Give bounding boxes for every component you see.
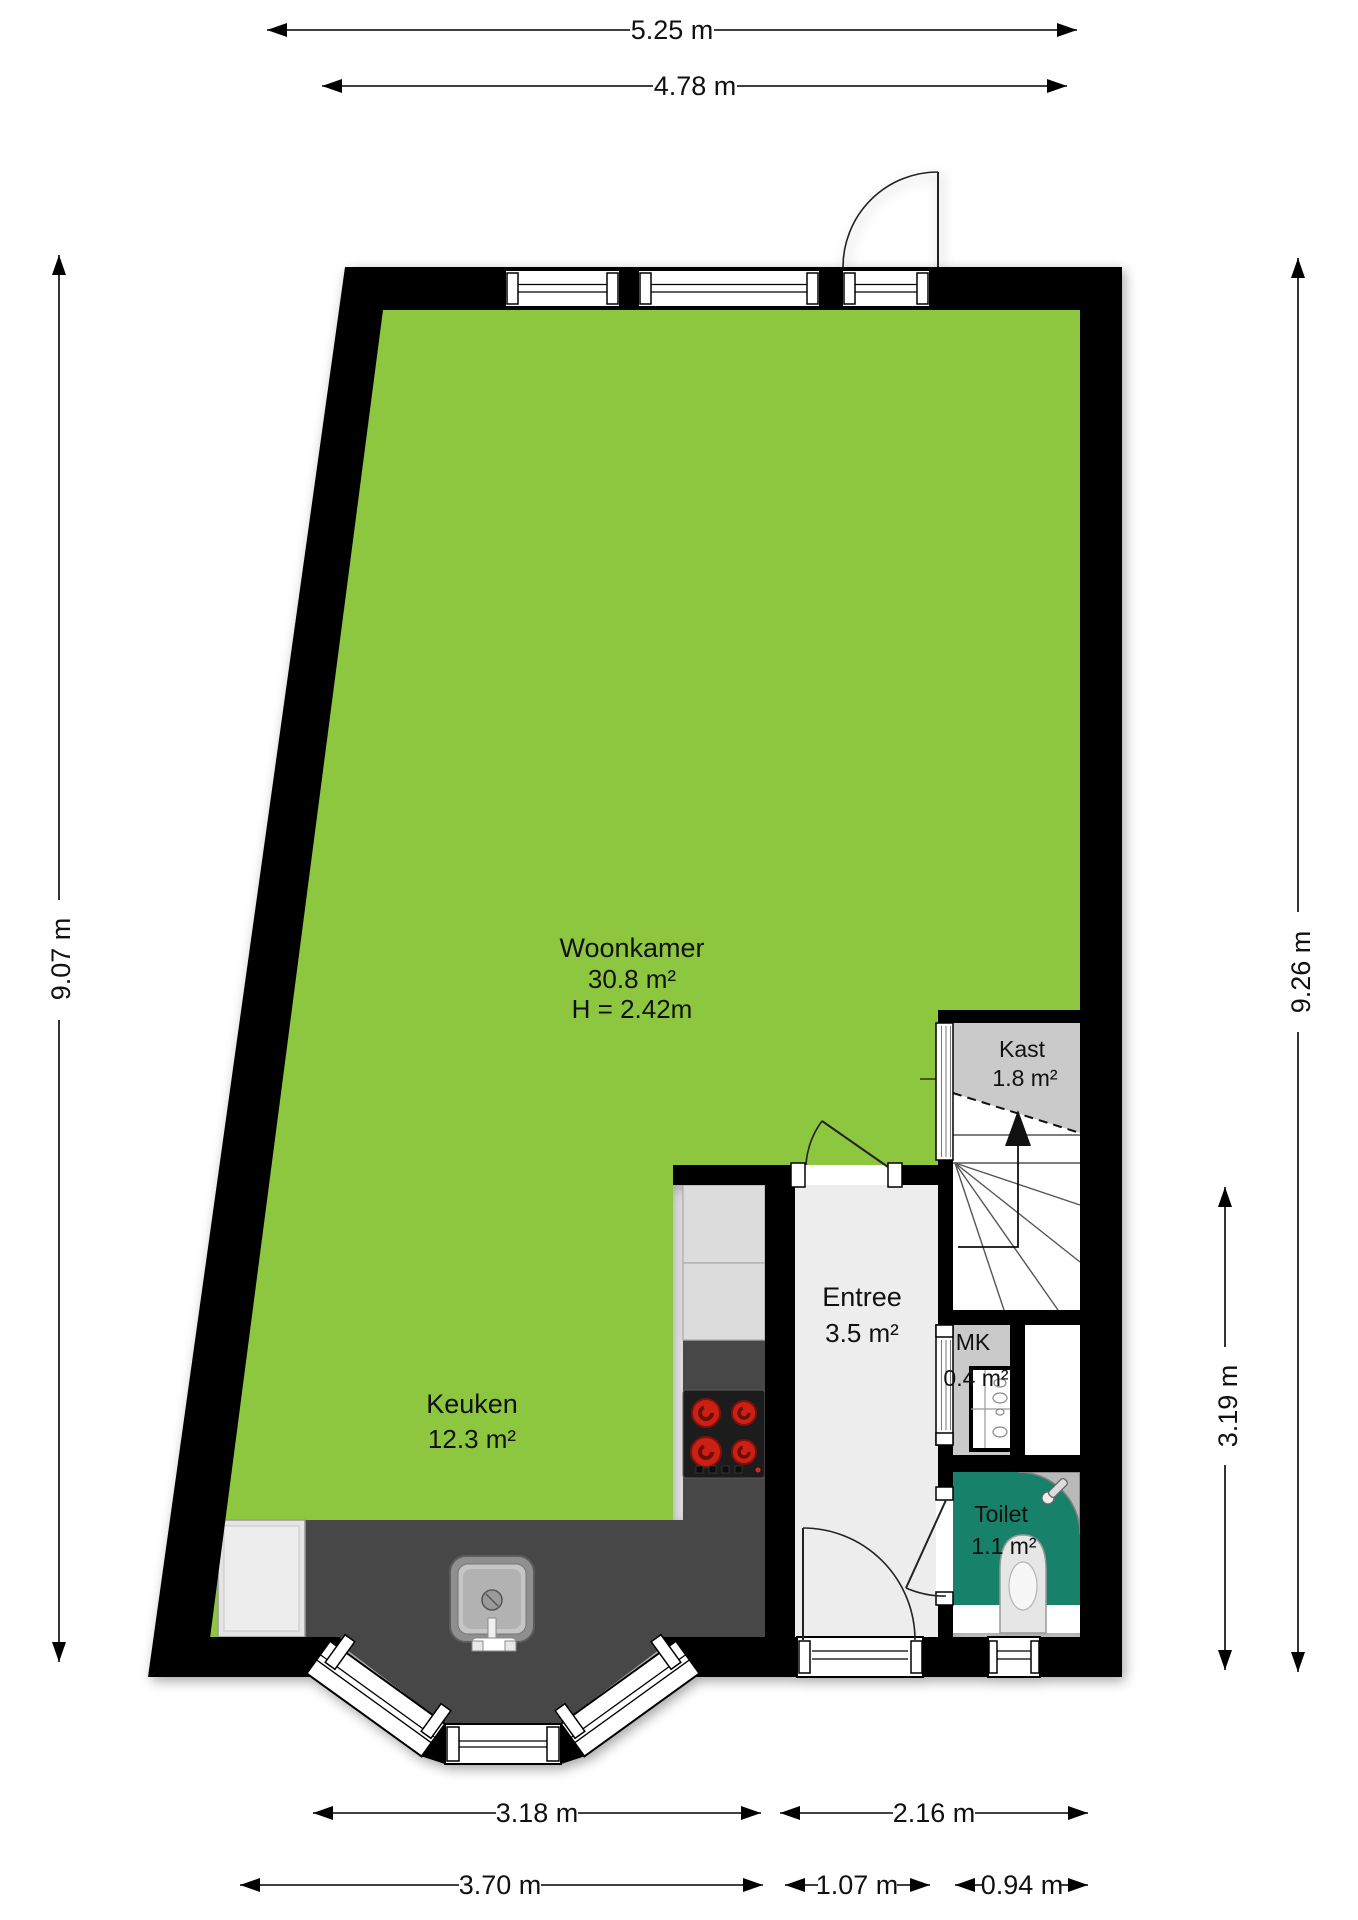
wall-mk-toilet	[938, 1455, 1080, 1472]
dim-right-outer: 9.26 m	[1286, 258, 1316, 1672]
label-mk-name: MK	[956, 1329, 991, 1355]
wall-entree-top-stub	[673, 1165, 793, 1185]
window-top-mid-icon	[638, 270, 820, 307]
room-entree-floor	[795, 1185, 938, 1637]
label-keuken-name: Keuken	[426, 1389, 518, 1419]
wall-right	[1080, 267, 1122, 1677]
dim-right-inner: 3.19 m	[1213, 1187, 1243, 1670]
door-top-glazed-icon	[842, 172, 938, 307]
dim-label: 4.78 m	[654, 71, 737, 101]
floor-plan-page: Woonkamer 30.8 m² H = 2.42m Keuken 12.3 …	[0, 0, 1358, 1920]
label-keuken-area: 12.3 m²	[428, 1424, 516, 1454]
dim-label: 2.16 m	[893, 1798, 976, 1828]
dim-label: 3.19 m	[1213, 1365, 1243, 1448]
dim-bottom-370: 3.70 m	[240, 1870, 763, 1900]
dim-label: 1.07 m	[816, 1870, 899, 1900]
kitchen-appliance-inner	[224, 1526, 299, 1631]
wall-kast-top	[938, 1010, 1080, 1023]
wall-bottom-door-right	[923, 1637, 990, 1677]
dim-top-inner: 4.78 m	[322, 71, 1067, 101]
wall-entree-kitchen	[765, 1185, 795, 1637]
floor-plan-canvas: Woonkamer 30.8 m² H = 2.42m Keuken 12.3 …	[0, 0, 1358, 1920]
hob-icon	[683, 1390, 765, 1478]
kitchen-cabinet-upper	[683, 1185, 765, 1263]
label-toilet-area: 1.1 m²	[971, 1533, 1037, 1559]
dim-label: 5.25 m	[631, 15, 714, 45]
window-toilet-icon	[988, 1637, 1040, 1677]
wall-stairs-bottom	[938, 1310, 1122, 1325]
wall-mk-right	[1010, 1325, 1025, 1455]
window-top-left-icon	[505, 270, 620, 307]
dim-bottom-107: 1.07 m	[785, 1870, 930, 1900]
label-woonkamer-name: Woonkamer	[559, 933, 704, 963]
dim-label: 0.94 m	[981, 1870, 1064, 1900]
dim-left: 9.07 m	[46, 255, 76, 1662]
building: Woonkamer 30.8 m² H = 2.42m Keuken 12.3 …	[148, 172, 1122, 1764]
wall-bottom-right	[1040, 1637, 1122, 1677]
dim-label: 3.18 m	[496, 1798, 579, 1828]
dim-label: 3.70 m	[459, 1870, 542, 1900]
sink-icon	[450, 1556, 534, 1651]
dim-label: 9.07 m	[46, 918, 76, 1001]
label-kast-name: Kast	[999, 1036, 1046, 1062]
label-woonkamer-height: H = 2.42m	[572, 994, 693, 1024]
dim-top-outer: 5.25 m	[267, 15, 1077, 45]
label-woonkamer-area: 30.8 m²	[588, 964, 676, 994]
dim-label: 9.26 m	[1286, 931, 1316, 1014]
kitchen-cabinet-lower	[683, 1263, 765, 1340]
door-swing-icon	[843, 172, 938, 267]
label-kast-area: 1.8 m²	[992, 1065, 1058, 1091]
dim-bottom-216: 2.16 m	[780, 1798, 1088, 1828]
label-entree-name: Entree	[822, 1282, 902, 1312]
label-toilet-name: Toilet	[974, 1501, 1028, 1527]
dim-bottom-094: 0.94 m	[955, 1870, 1088, 1900]
label-mk-area: 0.4 m²	[943, 1365, 1009, 1391]
understairs-niche-floor	[1025, 1325, 1080, 1455]
dim-bottom-318: 3.18 m	[313, 1798, 761, 1828]
label-entree-area: 3.5 m²	[825, 1318, 899, 1348]
